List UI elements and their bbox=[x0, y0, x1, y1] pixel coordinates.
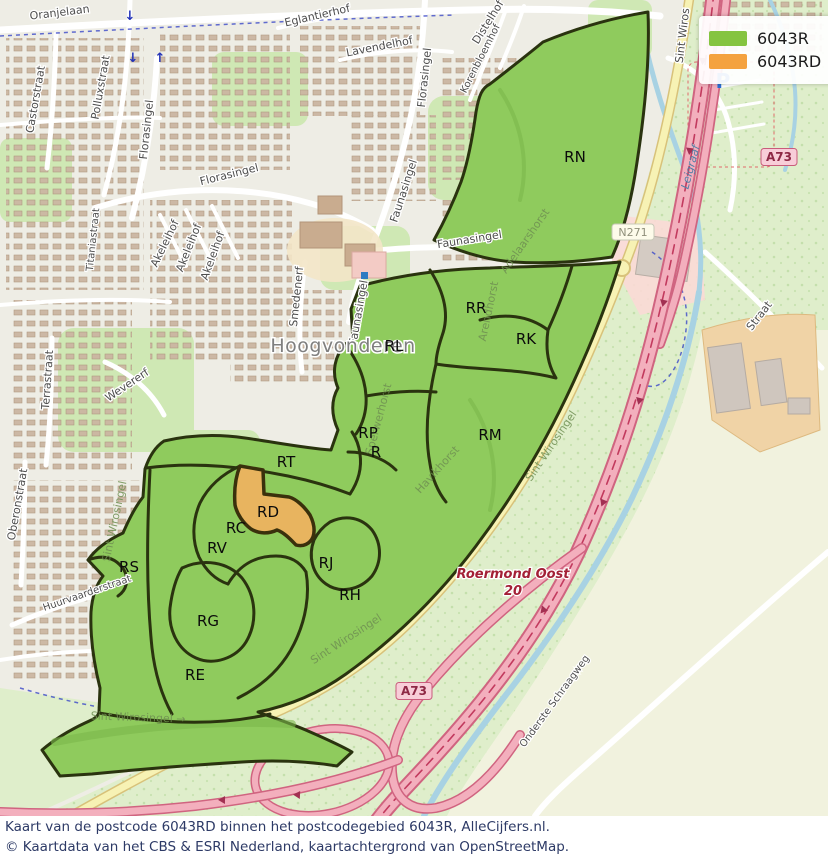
caption-line-2: © Kaartdata van het CBS & ESRI Nederland… bbox=[5, 838, 828, 858]
motorway-shield: A73 bbox=[761, 149, 797, 166]
map-legend: 6043R 6043RD bbox=[699, 16, 828, 84]
region-label: RV bbox=[207, 539, 228, 557]
motorway-shield: A73 bbox=[396, 683, 432, 700]
exit-number-label: 20 bbox=[504, 584, 522, 599]
svg-text:↑: ↑ bbox=[155, 51, 166, 66]
region-label: RE bbox=[185, 666, 205, 684]
national-road-shield: N271 bbox=[612, 224, 654, 240]
region-label: RG bbox=[197, 612, 219, 630]
map-caption: Kaart van de postcode 6043RD binnen het … bbox=[0, 816, 828, 861]
region-label: RM bbox=[478, 426, 501, 444]
legend-swatch-6043r bbox=[709, 31, 747, 46]
region-label: RP bbox=[358, 424, 377, 442]
region-label: RT bbox=[277, 453, 296, 471]
svg-text:A73: A73 bbox=[401, 684, 427, 698]
map-page: ↓ ↓ ↑ bbox=[0, 0, 828, 861]
region-label: RC bbox=[226, 519, 246, 537]
region-label: RD bbox=[257, 503, 279, 521]
region-label: RR bbox=[466, 299, 487, 317]
legend-label-6043rd: 6043RD bbox=[757, 52, 821, 71]
region-label: RS bbox=[119, 558, 139, 576]
svg-text:N271: N271 bbox=[618, 226, 647, 239]
legend-label-6043r: 6043R bbox=[757, 29, 809, 48]
map-svg: ↓ ↓ ↑ bbox=[0, 0, 828, 816]
svg-text:↓: ↓ bbox=[128, 51, 139, 66]
legend-swatch-6043rd bbox=[709, 54, 747, 69]
region-label: RL bbox=[385, 337, 404, 355]
exit-name-label: Roermond Oost bbox=[456, 567, 570, 582]
legend-row-6043r: 6043R bbox=[709, 29, 828, 48]
region-label: RJ bbox=[319, 554, 334, 572]
region-label: RK bbox=[516, 330, 537, 348]
svg-text:A73: A73 bbox=[766, 150, 792, 164]
poi-marker-icon bbox=[361, 272, 368, 279]
svg-text:↓: ↓ bbox=[125, 9, 136, 24]
region-label: R bbox=[371, 443, 381, 461]
region-label: RH bbox=[339, 586, 361, 604]
caption-line-1: Kaart van de postcode 6043RD binnen het … bbox=[5, 818, 828, 838]
legend-row-6043rd: 6043RD bbox=[709, 52, 828, 71]
map-canvas: ↓ ↓ ↑ bbox=[0, 0, 828, 816]
region-label: RN bbox=[564, 148, 586, 166]
